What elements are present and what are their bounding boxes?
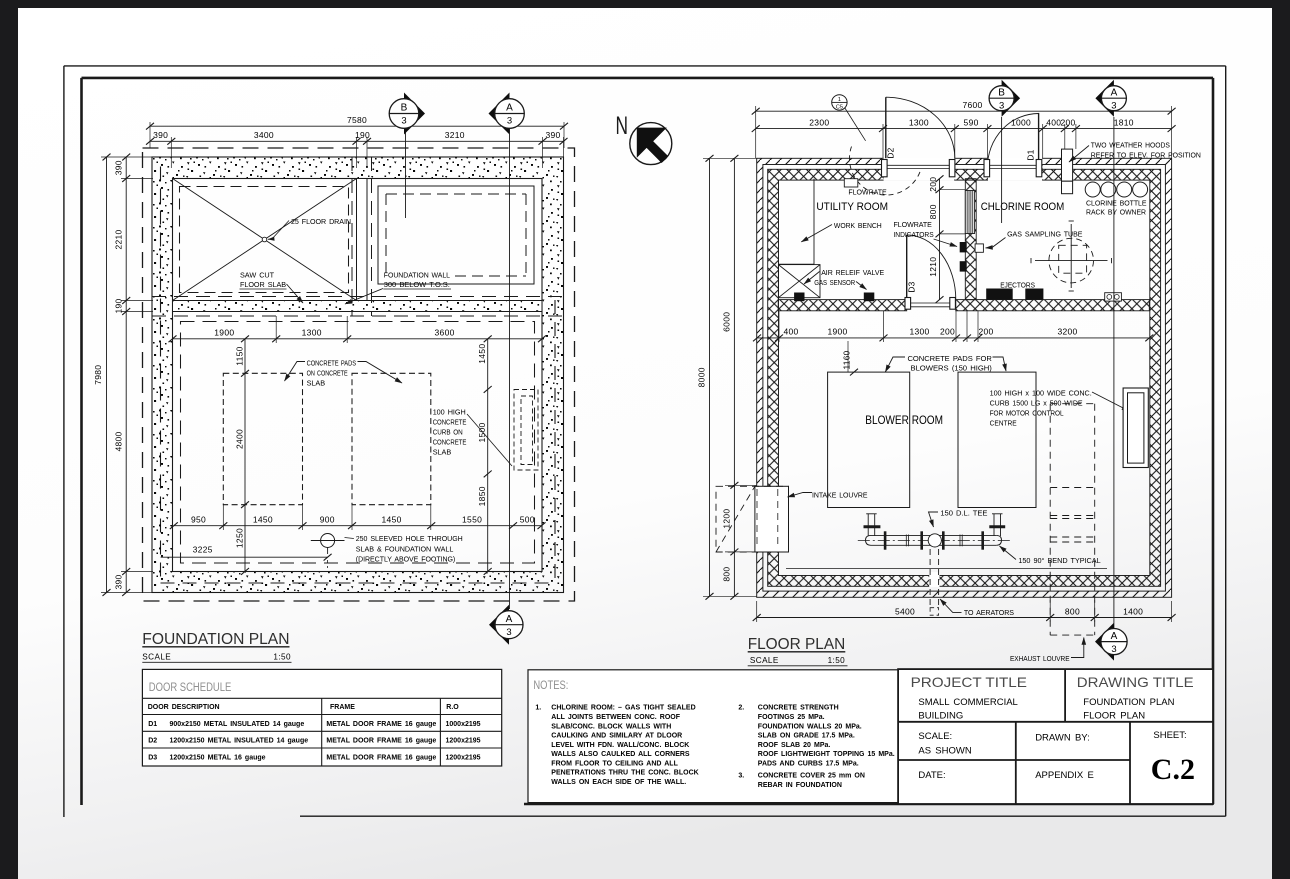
svg-text:3.: 3. [738,773,744,780]
svg-text:7580: 7580 [347,115,367,125]
svg-text:FOOTINGS 25 MPa.: FOOTINGS 25 MPa. [758,714,825,721]
svg-text:AS SHOWN: AS SHOWN [918,746,971,757]
svg-text:150 90° BEND TYPICAL: 150 90° BEND TYPICAL [1018,556,1100,565]
svg-text:CONCRETE PADS: CONCRETE PADS [307,359,356,368]
svg-text:200: 200 [978,327,993,337]
svg-text:CHLORINE ROOM: – GAS TIGHT SEA: CHLORINE ROOM: – GAS TIGHT SEALED [551,705,695,712]
svg-text:FLOOR SLAB: FLOOR SLAB [240,280,286,289]
svg-text:WALLS ON EACH SIDE OF THE WALL: WALLS ON EACH SIDE OF THE WALL. [551,779,686,786]
svg-text:590: 590 [964,117,979,127]
svg-text:3: 3 [1111,100,1116,111]
svg-text:5400: 5400 [895,606,915,616]
svg-text:(DIRECTLY ABOVE FOOTING): (DIRECTLY ABOVE FOOTING) [356,555,456,564]
svg-text:3210: 3210 [445,130,465,140]
svg-text:CURB 1500 LG x 500 WIDE: CURB 1500 LG x 500 WIDE [990,398,1083,407]
svg-text:D1: D1 [1026,149,1036,160]
svg-text:200: 200 [940,327,955,337]
svg-text:INDICATORS: INDICATORS [894,230,934,239]
svg-text:TO AERATORS: TO AERATORS [964,608,1014,617]
svg-text:3: 3 [401,116,406,127]
svg-text:390: 390 [114,160,124,175]
svg-text:PENETRATIONS THRU THE CONC. BL: PENETRATIONS THRU THE CONC. BLOCK [551,770,698,777]
svg-text:3600: 3600 [435,328,455,338]
svg-text:A: A [1111,87,1118,98]
svg-text:1000: 1000 [1011,117,1031,127]
svg-text:SMALL COMMERCIAL: SMALL COMMERCIAL [918,697,1017,708]
svg-text:2300: 2300 [809,117,829,127]
svg-text:BLOWER ROOM: BLOWER ROOM [865,415,943,427]
svg-text:900: 900 [320,515,335,525]
svg-text:SLAB/CONC. BLOCK WALLS WITH: SLAB/CONC. BLOCK WALLS WITH [551,723,671,730]
svg-text:250 SLEEVED HOLE THROUGH: 250 SLEEVED HOLE THROUGH [356,534,463,543]
svg-text:FLOOR PLAN: FLOOR PLAN [1083,710,1145,721]
svg-text:1810: 1810 [1114,117,1134,127]
svg-text:SCALE:: SCALE: [918,731,952,742]
svg-text:METAL DOOR FRAME 16 gauge: METAL DOOR FRAME 16 gauge [326,721,436,728]
svg-text:FLOOR PLAN: FLOOR PLAN [748,636,846,653]
svg-text:8000: 8000 [697,367,707,387]
svg-text:A: A [1111,631,1118,642]
svg-text:25 FLOOR DRAIN: 25 FLOOR DRAIN [291,217,351,226]
svg-text:DRAWN BY:: DRAWN BY: [1035,733,1090,744]
svg-text:METAL DOOR FRAME 16 gauge: METAL DOOR FRAME 16 gauge [326,738,436,745]
svg-text:100 HIGH x 100 WIDE CONC.: 100 HIGH x 100 WIDE CONC. [990,388,1092,397]
svg-text:1850: 1850 [477,486,487,506]
svg-text:6000: 6000 [722,312,732,332]
svg-text:1450: 1450 [253,515,273,525]
svg-text:CONCRETE PADS FOR: CONCRETE PADS FOR [908,354,993,363]
svg-text:150 D.L. TEE: 150 D.L. TEE [940,509,987,518]
svg-text:1200: 1200 [722,509,732,529]
svg-text:200: 200 [928,177,938,192]
svg-text:A: A [506,614,513,625]
svg-text:1200x2195: 1200x2195 [446,754,481,761]
svg-text:DOOR DESCRIPTION: DOOR DESCRIPTION [148,704,220,711]
svg-text:SCALE: SCALE [142,652,171,661]
svg-text:FRAME: FRAME [330,704,355,711]
svg-text:CONCRETE COVER 25 mm ON: CONCRETE COVER 25 mm ON [758,773,865,780]
svg-text:3400: 3400 [254,130,274,140]
svg-text:INTAKE LOUVRE: INTAKE LOUVRE [812,491,868,500]
svg-text:400: 400 [1046,117,1061,127]
svg-text:PADS AND CURBS 17.5 MPa.: PADS AND CURBS 17.5 MPa. [758,760,859,767]
svg-text:N: N [616,112,629,140]
svg-text:DOOR SCHEDULE: DOOR SCHEDULE [149,682,232,694]
svg-text:D3: D3 [148,754,157,761]
svg-text:1210: 1210 [928,257,938,277]
svg-text:SCALE: SCALE [750,656,779,665]
svg-text:SLAB: SLAB [307,379,326,388]
svg-text:1400: 1400 [1123,606,1143,616]
svg-text:CLORINE BOTTLE: CLORINE BOTTLE [1086,198,1147,207]
svg-text:3200: 3200 [1057,327,1077,337]
svg-text:190: 190 [114,298,124,313]
svg-text:1150: 1150 [235,346,245,365]
svg-text:800: 800 [722,567,732,582]
svg-text:ALL JOINTS BETWEEN CONC. ROOF: ALL JOINTS BETWEEN CONC. ROOF [551,714,680,721]
svg-text:3: 3 [506,627,511,638]
svg-text:ROOF LIGHTWEIGHT TOPPING 15 MP: ROOF LIGHTWEIGHT TOPPING 15 MPa. [758,751,895,758]
svg-text:EXHAUST LOUVRE: EXHAUST LOUVRE [1010,654,1070,663]
svg-text:3: 3 [507,116,512,127]
svg-text:2210: 2210 [114,229,124,249]
svg-text:1550: 1550 [462,515,482,525]
svg-text:APPENDIX E: APPENDIX E [1035,770,1094,781]
svg-text:FOR MOTOR CONTROL: FOR MOTOR CONTROL [990,408,1064,417]
svg-text:1:50: 1:50 [828,656,846,665]
svg-text:LEVEL WITH FDN. WALL/CONC. BLO: LEVEL WITH FDN. WALL/CONC. BLOCK [551,742,689,749]
svg-text:1900: 1900 [827,327,847,337]
svg-text:PROJECT TITLE: PROJECT TITLE [911,674,1027,690]
svg-text:CONCRETE: CONCRETE [433,438,467,447]
svg-text:3: 3 [999,100,1004,111]
svg-text:1300: 1300 [909,117,929,127]
svg-text:1200x2195: 1200x2195 [446,738,481,745]
svg-text:TWO WEATHER HOODS: TWO WEATHER HOODS [1091,141,1170,150]
svg-text:D1: D1 [148,721,157,728]
svg-text:500: 500 [520,515,535,525]
svg-text:AIR RELEIF VALVE: AIR RELEIF VALVE [821,268,884,277]
svg-text:R.O: R.O [446,704,459,711]
svg-text:SLAB & FOUNDATION WALL: SLAB & FOUNDATION WALL [356,544,454,553]
svg-text:390: 390 [545,130,560,140]
svg-text:NOTES:: NOTES: [533,680,568,692]
svg-text:4800: 4800 [114,431,124,451]
svg-text:REFER TO ELEV. FOR POSITION: REFER TO ELEV. FOR POSITION [1091,150,1201,159]
svg-text:390: 390 [114,574,124,589]
svg-text:DATE:: DATE: [918,770,945,781]
svg-text:1:50: 1:50 [273,652,291,661]
svg-text:A: A [506,103,513,114]
svg-text:800: 800 [1065,606,1080,616]
svg-text:SLAB: SLAB [433,448,452,457]
svg-text:FOUNDATION PLAN: FOUNDATION PLAN [142,631,289,648]
svg-text:D2: D2 [886,147,896,158]
svg-text:1500: 1500 [477,422,487,442]
svg-text:FLOWRATE: FLOWRATE [894,220,932,229]
svg-text:1450: 1450 [382,515,402,525]
svg-text:1250: 1250 [235,528,245,548]
svg-text:EJECTORS: EJECTORS [1000,280,1035,289]
svg-text:1000x2195: 1000x2195 [446,721,481,728]
svg-text:C.2: C.2 [1151,753,1195,786]
svg-text:DRAWING TITLE: DRAWING TITLE [1077,674,1194,690]
svg-text:2400: 2400 [235,429,245,449]
svg-text:3: 3 [1111,644,1116,655]
svg-text:SLAB ON GRADE 17.5 MPa.: SLAB ON GRADE 17.5 MPa. [758,733,855,740]
svg-text:B: B [998,87,1005,98]
svg-text:950: 950 [191,515,206,525]
svg-text:D3: D3 [907,281,917,292]
svg-text:C5: C5 [836,105,843,111]
svg-text:7600: 7600 [962,100,982,110]
svg-text:BLOWERS (150 HIGH): BLOWERS (150 HIGH) [911,364,993,373]
svg-text:B: B [401,103,408,114]
svg-text:100 HIGH: 100 HIGH [433,408,466,417]
svg-text:300 BELOW T.O.S.: 300 BELOW T.O.S. [384,280,450,289]
svg-text:REBAR IN FOUNDATION: REBAR IN FOUNDATION [758,782,842,789]
svg-text:RACK BY OWNER: RACK BY OWNER [1086,207,1147,216]
svg-text:CAULKING AND SIMILARY AT DLOOR: CAULKING AND SIMILARY AT DLOOR [551,733,682,740]
svg-text:FOUNDATION WALL: FOUNDATION WALL [384,271,450,280]
svg-text:CHLORINE ROOM: CHLORINE ROOM [981,201,1065,213]
svg-text:METAL DOOR FRAME 16 gauge: METAL DOOR FRAME 16 gauge [326,754,436,761]
svg-text:1: 1 [838,97,841,103]
svg-text:1.: 1. [535,705,541,712]
svg-text:CENTRE: CENTRE [990,418,1017,427]
svg-text:WORK BENCH: WORK BENCH [834,221,882,230]
svg-text:1300: 1300 [909,327,929,337]
svg-text:FOUNDATION PLAN: FOUNDATION PLAN [1083,697,1174,708]
svg-text:FLOWRATE: FLOWRATE [848,188,886,197]
svg-text:190: 190 [355,130,370,140]
svg-text:CURB ON: CURB ON [433,428,463,437]
svg-text:1450: 1450 [477,344,487,364]
svg-text:UTILITY ROOM: UTILITY ROOM [816,201,888,213]
svg-text:BUILDING: BUILDING [918,710,963,721]
svg-text:FROM FLOOR TO CEILING AND ALL: FROM FLOOR TO CEILING AND ALL [551,760,678,767]
svg-text:7980: 7980 [93,365,103,385]
svg-text:900x2150 METAL INSULATED 14 ga: 900x2150 METAL INSULATED 14 gauge [170,721,305,728]
svg-text:SHEET:: SHEET: [1153,730,1186,741]
svg-text:WALLS ALSO CAULKED ALL CORNERS: WALLS ALSO CAULKED ALL CORNERS [551,751,690,758]
svg-text:FOUNDATION WALLS 20 MPa.: FOUNDATION WALLS 20 MPa. [758,723,862,730]
svg-text:400: 400 [783,327,798,337]
svg-text:ON CONCRETE: ON CONCRETE [307,369,348,378]
svg-text:1200x2150 METAL INSULATED 14 g: 1200x2150 METAL INSULATED 14 gauge [170,738,309,745]
svg-text:3225: 3225 [193,545,213,555]
svg-text:SAW CUT: SAW CUT [240,271,274,280]
svg-text:GAS SENSOR: GAS SENSOR [814,278,855,287]
svg-text:ROOF SLAB 20 MPa.: ROOF SLAB 20 MPa. [758,742,831,749]
svg-text:CONCRETE STRENGTH: CONCRETE STRENGTH [758,705,839,712]
svg-text:2.: 2. [738,705,744,712]
svg-text:1160: 1160 [842,350,852,369]
svg-text:CONCRETE: CONCRETE [433,418,467,427]
svg-text:200: 200 [1060,117,1075,127]
svg-text:390: 390 [153,130,168,140]
svg-text:D2: D2 [148,738,157,745]
svg-text:1300: 1300 [302,328,322,338]
svg-text:1200x2150 METAL 16 gauge: 1200x2150 METAL 16 gauge [170,754,266,761]
svg-text:1900: 1900 [214,328,234,338]
svg-text:800: 800 [928,204,938,219]
